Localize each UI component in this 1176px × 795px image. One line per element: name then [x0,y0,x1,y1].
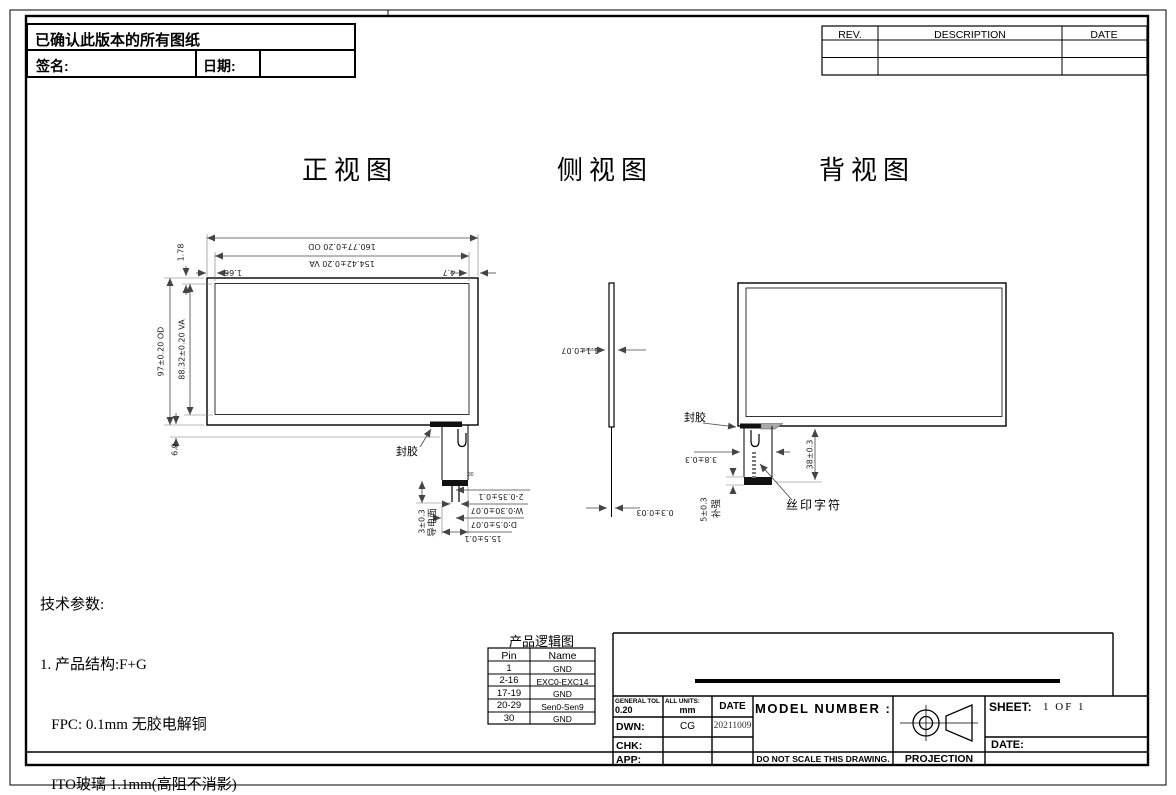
dwn-label: DWN: [616,721,645,733]
dim-bottom-margin: 6.9 [170,439,181,461]
logic-row-name: GND [530,714,595,724]
tech-param-line: 1. 产品结构:F+G [40,655,268,675]
silkscreen-mark [752,452,756,478]
description-col-header: DESCRIPTION [900,29,1040,41]
front-view-outline [207,278,478,502]
general-tol-label: GENERAL TOL [615,698,660,705]
sheet-value: 1 OF 1 [1043,701,1086,713]
dim-va-right: 4.7 [438,267,460,278]
silkscreen-label: 丝印字符 [786,496,842,513]
general-tol-value: 0.20 [615,705,633,715]
stiffener-label: 补强 [713,495,724,523]
tech-param-line: ITO玻璃 1.1mm(高阻不消影) [40,775,268,795]
dim-va-left: 1.66 [220,267,246,278]
logic-row-name: GND [530,664,595,674]
front-view-title: 正视图 [295,150,405,187]
dim-back-fpc-width: 3.8±0.3 [680,454,722,465]
logic-col-name: Name [530,650,595,662]
model-number-label: MODEL NUMBER : [755,701,891,716]
logic-row-pin: 1 [488,663,530,674]
sheet-date-label: DATE: [991,739,1024,751]
logic-col-pin: Pin [488,650,530,662]
logic-row-pin: 20-29 [488,700,530,711]
dim-stiffener-length: 5±0.3 [699,494,710,526]
dim-trace-width: W:0.30±0.07 [466,505,528,516]
back-view-outline [738,283,1006,485]
dim-fpc-thickness: 0.3±0.03 [630,507,680,518]
dim-conductive-length: 3±0.3 [417,506,428,538]
front-seal-label: 封胶 [396,443,418,459]
chk-label: CHK: [616,740,642,752]
logic-row-pin: 17-19 [488,688,530,699]
sheet-label: SHEET: [989,700,1032,714]
dwn-value: CG [663,721,712,732]
tech-params-title: 技术参数: [40,595,268,615]
dim-glass-thickness: 1.1±0.07 [555,345,605,356]
no-scale-note: DO NOT SCALE THIS DRAWING. [753,754,893,764]
approval-date-label: 日期: [203,56,236,76]
pin-30-mark: 30 [468,472,474,478]
back-seal-label: 封胶 [684,409,706,425]
dim-trace-depth: D:0.5±0.07 [466,519,522,530]
date-col-header: DATE [1074,29,1134,41]
drawn-date-value: 20211009 [712,721,753,731]
dim-va-top: 1.78 [176,240,187,266]
dim-tail-width: 15.5±0.1 [460,533,506,544]
back-view-title: 背视图 [812,150,922,187]
logic-table-title: 产品逻辑图 [488,631,595,650]
logic-row-pin: 30 [488,713,530,724]
dim-pads: 2-0.35±0.1 [473,491,529,502]
dim-od-height: 97±0.20 OD [156,320,167,384]
projection-label: PROJECTION [895,753,983,765]
conductive-surface-label: 导电面 [429,503,440,543]
approval-title: 已确认此版本的所有图纸 [35,29,200,50]
logic-row-name: GND [530,689,595,699]
dim-od-width: 160.77±0.20 OD [300,241,384,252]
units-value: mm [665,705,710,715]
logic-row-name: Sen0-Sen9 [530,702,595,712]
tech-params-block: 技术参数: 1. 产品结构:F+G FPC: 0.1mm 无胶电解铜 ITO玻璃… [40,555,268,795]
logic-row-name: EXC0-EXC14 [530,677,595,687]
front-view-dimensions [164,234,530,534]
side-view-outline [609,283,614,517]
dim-tail-length: 38±0.3 [805,436,816,474]
side-view-title: 侧视图 [550,150,660,187]
drawing-sheet: 已确认此版本的所有图纸 签名: 日期: REV. DESCRIPTION DAT… [0,0,1176,795]
rev-col-header: REV. [828,29,872,41]
projection-symbol [900,705,978,741]
dim-va-height: 88.32±0.20 VA [177,312,188,388]
approval-sign-label: 签名: [36,56,69,76]
units-label: ALL UNITS: [665,698,700,705]
dim-va-width: 154.42±0.20 VA [300,258,384,269]
app-label: APP: [616,754,641,766]
logic-row-pin: 2-16 [488,675,530,686]
tech-param-line: FPC: 0.1mm 无胶电解铜 [40,715,268,735]
date-header: DATE [713,701,752,712]
